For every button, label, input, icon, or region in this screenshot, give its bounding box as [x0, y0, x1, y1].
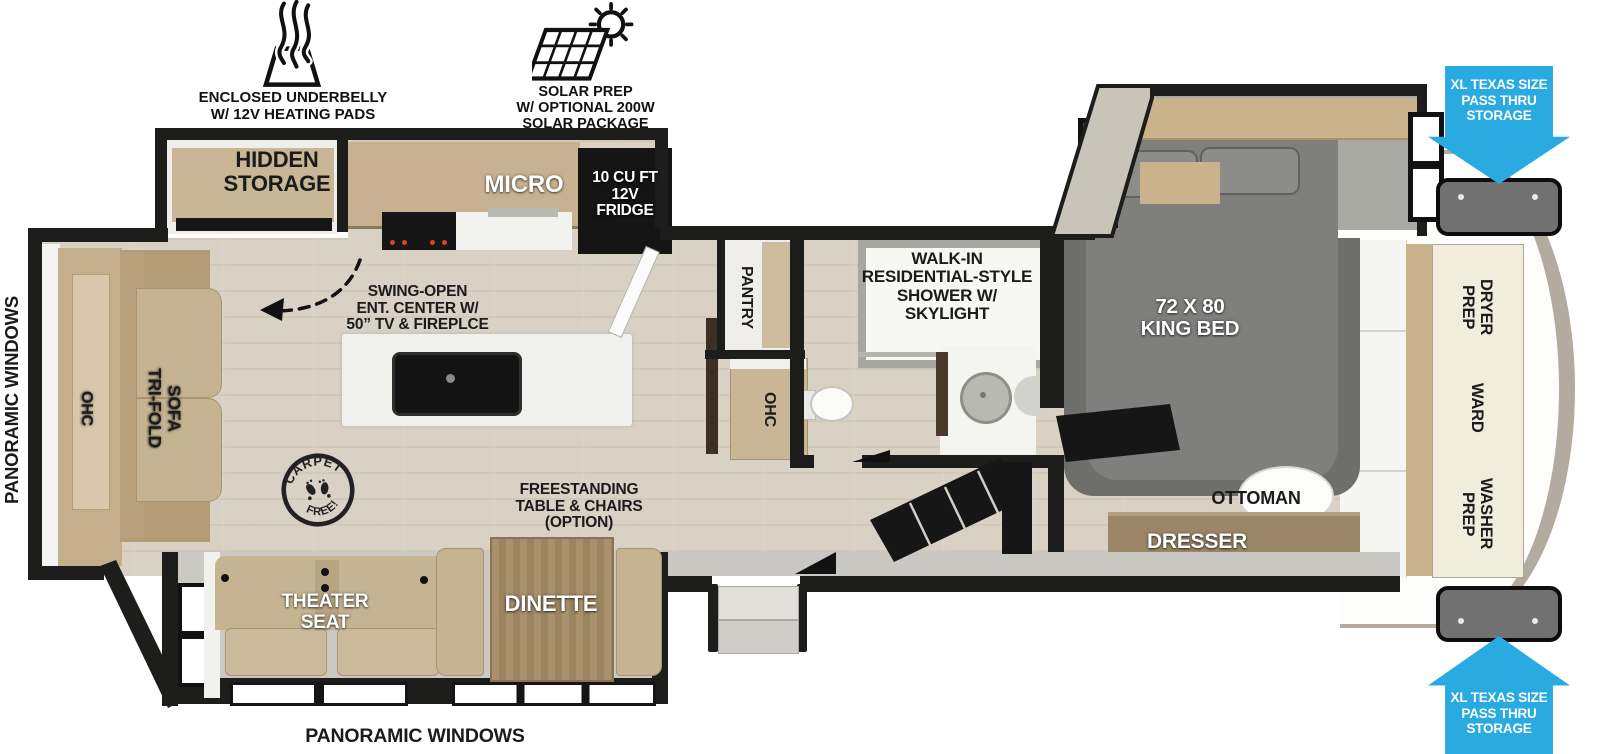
pantry-label: PANTRY: [737, 266, 755, 329]
slide-window: [452, 682, 656, 706]
underbelly-caption: ENCLOSED UNDERBELLY W/ 12V HEATING PADS: [168, 90, 418, 124]
ward-label: WARD: [1468, 383, 1486, 433]
wall-bath-bottom-a: [790, 455, 814, 468]
hidden-storage-counter-edge: [176, 218, 332, 231]
theater-cushion: [225, 628, 327, 676]
shower-label: WALK-IN RESIDENTIAL-STYLE SHOWER W/ SKYL…: [843, 250, 1051, 323]
cupholder: [321, 568, 329, 576]
mid-ohc-label: OHC: [760, 392, 778, 427]
dresser-label: DRESSER: [1127, 531, 1267, 554]
panoramic-windows-bottom-label: PANORAMIC WINDOWS: [283, 726, 547, 747]
dinette-label: DINETTE: [481, 592, 621, 616]
wall-bedslide-top: [1100, 84, 1427, 96]
freestanding-label: FREESTANDING TABLE & CHAIRS (OPTION): [495, 482, 663, 532]
screw: [1532, 618, 1538, 624]
micro-label: MICRO: [472, 172, 576, 198]
pantry-label-wrap: PANTRY: [729, 246, 763, 348]
wall-rear-bottom: [28, 566, 104, 580]
step-rail: [708, 584, 718, 652]
solar-prep-icon: [532, 2, 636, 86]
wall-pantry-left: [717, 226, 725, 352]
wall-bedroom-bottom: [1045, 576, 1400, 592]
washer-prep-wrap: WASHER PREP: [1437, 454, 1517, 574]
wall-rear-top: [28, 228, 168, 242]
wall-rear-left: [28, 228, 42, 580]
pass-thru-label-top: XL TEXAS SIZE PASS THRU STORAGE: [1428, 66, 1570, 124]
rv-floorplan-diagram: ENCLOSED UNDERBELLY W/ 12V HEATING PADS …: [0, 0, 1600, 754]
sink-drain: [980, 392, 986, 398]
screw: [1458, 194, 1464, 200]
micro-vent: [488, 208, 558, 217]
trim-bedroom-bottom: [1045, 552, 1400, 576]
wall-slide-left: [155, 128, 167, 240]
wall-slide-top: [155, 128, 668, 140]
toilet: [810, 386, 854, 422]
bedslide-window-left: [1078, 118, 1118, 228]
solar-caption: SOLAR PREP W/ OPTIONAL 200W SOLAR PACKAG…: [508, 84, 663, 133]
wall-bath-top: [790, 226, 1064, 240]
trim-living-bottom: [656, 552, 1046, 576]
panoramic-windows-left-label: PANORAMIC WINDOWS: [2, 296, 22, 504]
island-sink: [392, 352, 522, 416]
pass-thru-arrow-up: XL TEXAS SIZE PASS THRU STORAGE: [1428, 636, 1570, 754]
fridge-label: 10 CU FT 12V FRIDGE: [578, 170, 672, 220]
theater-cushion: [337, 628, 439, 676]
wall-living-bottom-b: [800, 576, 1045, 592]
bath-sink: [960, 372, 1012, 424]
headboard-shelf: [1110, 98, 1417, 140]
dryer-prep-label: DRYER PREP: [1459, 279, 1495, 335]
mid-ohc-label-wrap: OHC: [752, 364, 786, 454]
pass-thru-label-bottom: XL TEXAS SIZE PASS THRU STORAGE: [1428, 636, 1570, 737]
king-bed-label: 72 X 80 KING BED: [1110, 296, 1270, 340]
cupholder: [420, 576, 428, 584]
wall-bath-left: [790, 226, 804, 468]
cap-wood-strip: [1406, 244, 1432, 576]
swing-open-label: SWING-OPEN ENT. CENTER W/ 50” TV & FIREP…: [325, 284, 510, 334]
entry-step: [718, 586, 799, 620]
kitchen-sink-counter: [456, 212, 572, 250]
vanity-cabinet: [936, 352, 948, 436]
pass-thru-storage-top: [1436, 178, 1562, 236]
trifold-sofa-label: TRI-FOLD SOFA: [145, 368, 184, 448]
trifold-sofa-label-wrap: TRI-FOLD SOFA: [132, 340, 196, 476]
dinette-bench: [616, 548, 662, 676]
entry-step: [718, 620, 799, 654]
folded-blanket: [1140, 162, 1220, 204]
pass-thru-storage-bottom: [1436, 586, 1562, 642]
rear-ohc-label: OHC: [77, 391, 95, 426]
slide-window: [230, 682, 408, 706]
wall-main-top: [660, 226, 790, 240]
wall-bedroom-top: [1045, 226, 1095, 240]
theater-seat-label: THEATER SEAT: [254, 592, 396, 633]
island-faucet: [446, 374, 455, 383]
panoramic-left-wrap: PANORAMIC WINDOWS: [0, 252, 24, 548]
heating-pads-icon: [250, 0, 334, 90]
cupholder: [221, 574, 229, 582]
rear-ohc-label-wrap: OHC: [68, 366, 104, 450]
hidden-storage-label: HIDDEN STORAGE: [197, 148, 357, 196]
footprints-glyph: [303, 476, 333, 503]
ward-wrap: WARD: [1437, 364, 1517, 452]
ottoman-label: OTTOMAN: [1186, 489, 1326, 508]
dryer-prep-wrap: DRYER PREP: [1437, 252, 1517, 362]
dinette-bench: [436, 548, 484, 676]
washer-prep-label: WASHER PREP: [1459, 478, 1495, 549]
wall-bath-bottom-b: [862, 455, 1064, 468]
screw: [1458, 618, 1464, 624]
screw: [1532, 194, 1538, 200]
